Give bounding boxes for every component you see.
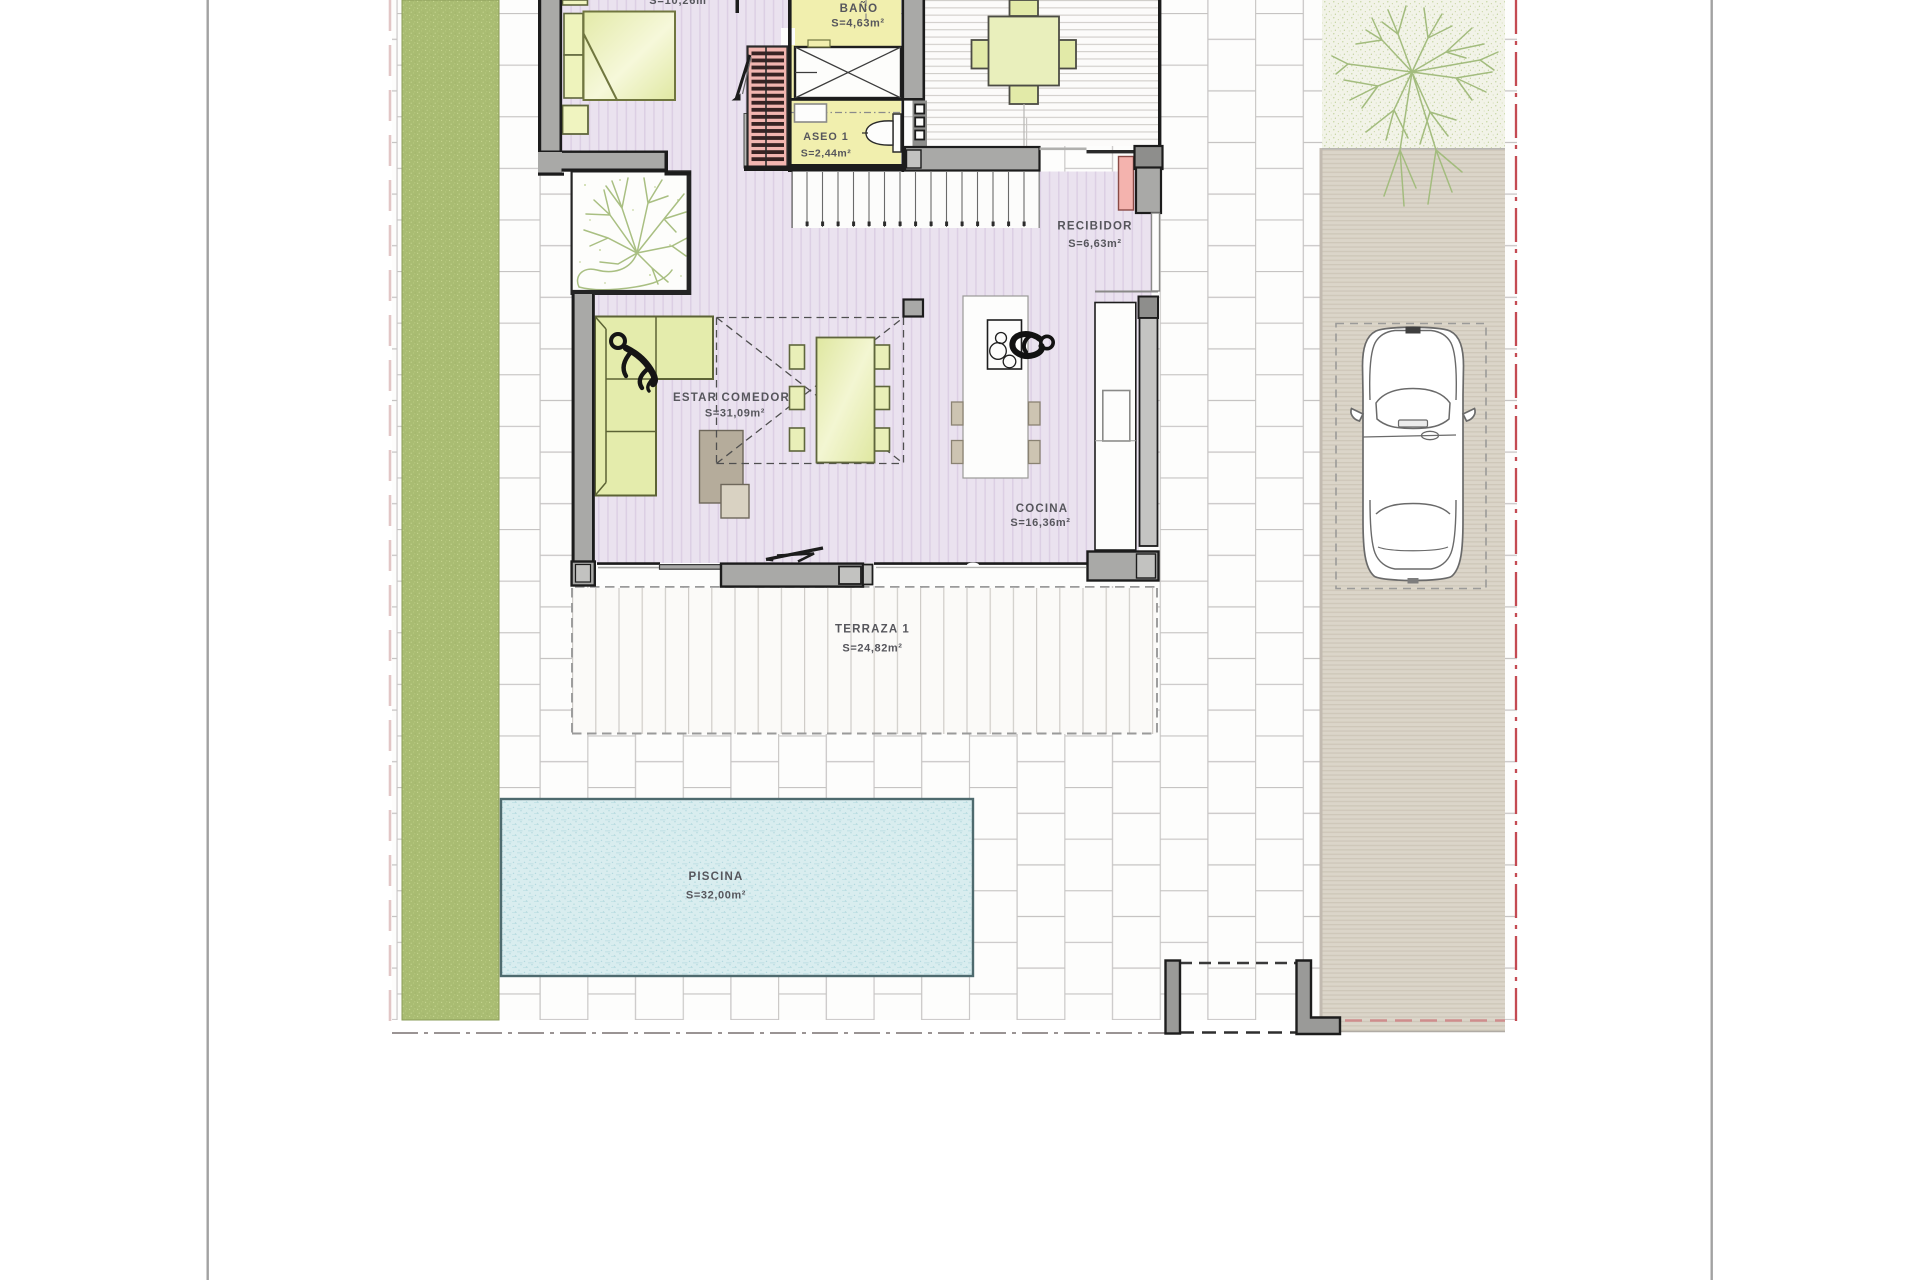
svg-text:S=24,82m²: S=24,82m² [842, 643, 902, 655]
svg-text:TERRAZA 1: TERRAZA 1 [835, 624, 910, 636]
svg-text:S=10,26m: S=10,26m [649, 0, 706, 7]
svg-text:PISCINA: PISCINA [688, 871, 743, 883]
svg-text:COCINA: COCINA [1016, 503, 1069, 515]
svg-text:RECIBIDOR: RECIBIDOR [1057, 221, 1132, 233]
svg-text:S=4,63m²: S=4,63m² [831, 18, 884, 30]
svg-text:ESTAR COMEDOR: ESTAR COMEDOR [673, 392, 790, 404]
svg-text:BAÑO: BAÑO [840, 2, 879, 15]
svg-text:S=31,09m²: S=31,09m² [705, 408, 765, 420]
svg-text:S=6,63m²: S=6,63m² [1068, 238, 1121, 250]
svg-text:ASEO 1: ASEO 1 [803, 131, 849, 143]
svg-text:S=2,44m²: S=2,44m² [801, 148, 851, 160]
svg-text:S=32,00m²: S=32,00m² [686, 890, 746, 902]
svg-text:S=16,36m²: S=16,36m² [1010, 517, 1070, 529]
